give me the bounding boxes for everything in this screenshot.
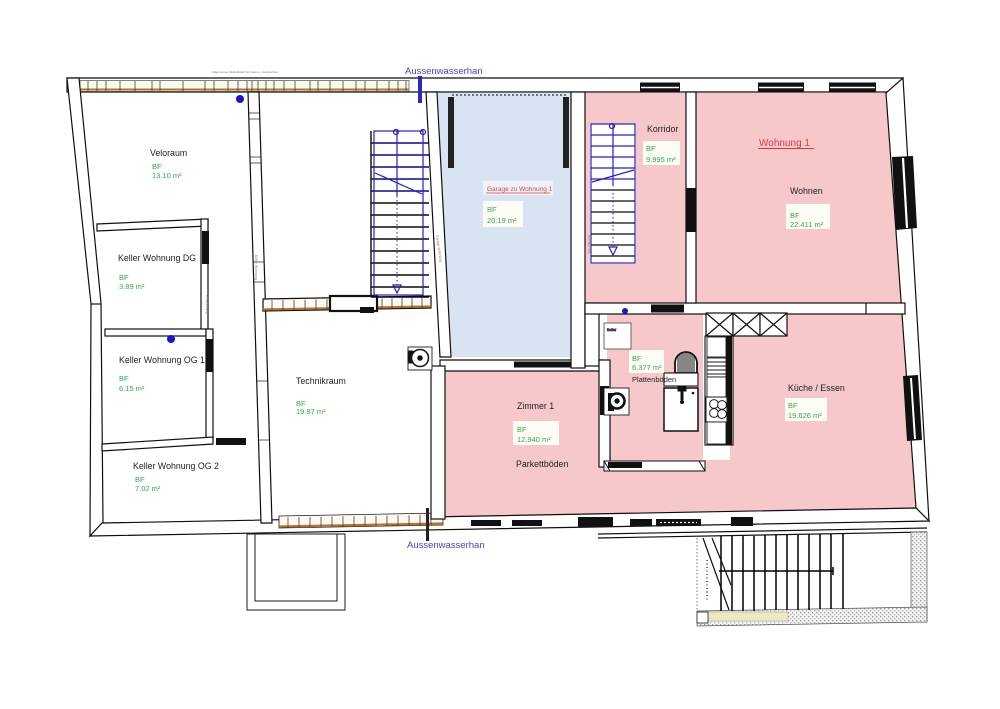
svg-text:Keller Wohnung DG: Keller Wohnung DG (118, 253, 196, 263)
svg-text:BF: BF (135, 475, 145, 484)
svg-text:9.995 m²: 9.995 m² (646, 155, 676, 164)
svg-text:Küche / Essen: Küche / Essen (788, 383, 845, 393)
svg-text:Zimmer 1: Zimmer 1 (517, 401, 554, 411)
svg-text:19.626 m²: 19.626 m² (788, 411, 822, 420)
svg-text:BF: BF (487, 205, 497, 214)
svg-text:Keller Wohnung: Keller Wohnung (254, 255, 258, 280)
svg-text:Allgemeiner Abstellplatz für V: Allgemeiner Abstellplatz für Velos u. de… (212, 70, 278, 74)
svg-text:Garage zu Wohnung 1: Garage zu Wohnung 1 (487, 186, 553, 193)
svg-text:Plattenböden: Plattenböden (632, 375, 676, 384)
svg-text:20.19 m²: 20.19 m² (487, 216, 517, 225)
svg-text:Korridor W1: Korridor W1 (587, 235, 591, 254)
svg-text:Aussenwasserhan: Aussenwasserhan (405, 66, 483, 77)
svg-text:7.02 m²: 7.02 m² (135, 484, 161, 493)
svg-text:12.940 m²: 12.940 m² (517, 435, 551, 444)
svg-text:BF: BF (119, 374, 129, 383)
svg-text:BF: BF (632, 354, 642, 363)
svg-text:Keller Wohnung OG 1: Keller Wohnung OG 1 (119, 355, 205, 365)
svg-text:19.87 m²: 19.87 m² (296, 407, 326, 416)
svg-text:Veloraum: Veloraum (150, 148, 187, 158)
svg-text:Wohnung 1: Wohnung 1 (759, 138, 810, 149)
svg-text:BF: BF (517, 425, 527, 434)
svg-text:6.15 m²: 6.15 m² (119, 384, 145, 393)
svg-text:Technikraum: Technikraum (296, 376, 346, 386)
svg-text:Parkettböden: Parkettböden (516, 459, 568, 469)
svg-text:Boiler: Boiler (607, 328, 617, 332)
svg-text:Aussenwasserhan: Aussenwasserhan (407, 540, 485, 551)
svg-text:BF: BF (790, 211, 800, 220)
svg-text:6.377 m²: 6.377 m² (632, 363, 662, 372)
svg-text:Wohnen: Wohnen (790, 186, 823, 196)
svg-text:BF: BF (119, 273, 129, 282)
svg-text:3.89 m²: 3.89 m² (119, 282, 145, 291)
svg-text:22.411 m²: 22.411 m² (790, 220, 824, 229)
svg-text:BF: BF (152, 162, 162, 171)
svg-text:Keller Wohnung OG 2: Keller Wohnung OG 2 (133, 461, 219, 471)
svg-text:K. Wohnung: K. Wohnung (205, 295, 209, 314)
svg-text:13.10 m²: 13.10 m² (152, 171, 182, 180)
svg-text:Korridor: Korridor (647, 124, 678, 134)
svg-text:BF: BF (788, 401, 798, 410)
svg-text:BF: BF (646, 144, 656, 153)
